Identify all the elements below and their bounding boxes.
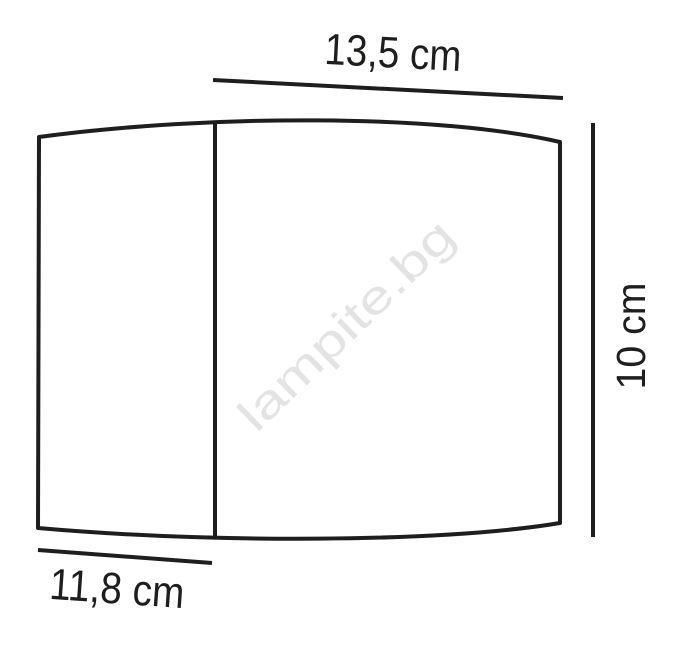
bottom-dimension-label: 11,8 cm <box>48 560 186 618</box>
dimension-diagram-canvas: lampite.bg 13,5 cm 10 cm 11,8 cm <box>0 0 679 654</box>
dimension-diagram: lampite.bg 13,5 cm 10 cm 11,8 cm <box>0 0 679 654</box>
top-dimension-label: 13,5 cm <box>323 25 462 81</box>
top-dimension-line <box>213 80 563 98</box>
shade-outline <box>38 120 560 538</box>
right-dimension-label: 10 cm <box>608 283 654 390</box>
watermark: lampite.bg <box>227 209 465 441</box>
